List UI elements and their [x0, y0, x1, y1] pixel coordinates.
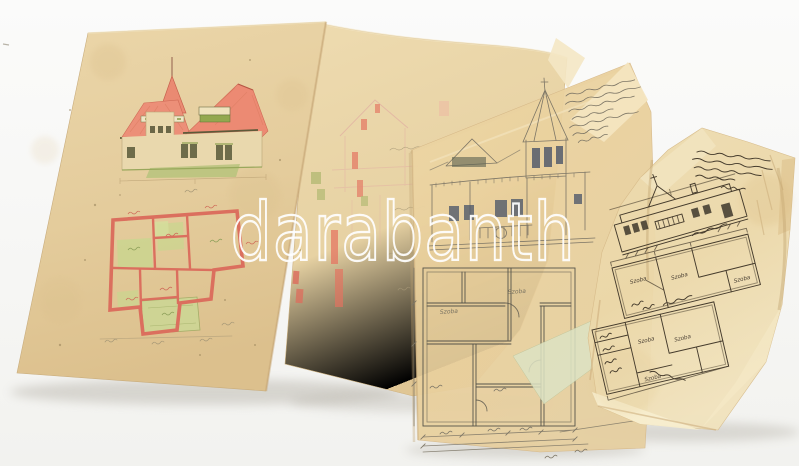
- room-label-pencil-2: Szoba: [508, 288, 527, 296]
- auction-photo-architectural-drawings: Szoba Szoba: [0, 0, 799, 466]
- photo-scene: Szoba Szoba: [0, 0, 799, 466]
- dust-speck: [3, 44, 9, 45]
- room-label-pencil-1: Szoba: [440, 308, 459, 316]
- roof-dormer: [199, 107, 230, 115]
- watermark-text: darabanth: [231, 186, 576, 279]
